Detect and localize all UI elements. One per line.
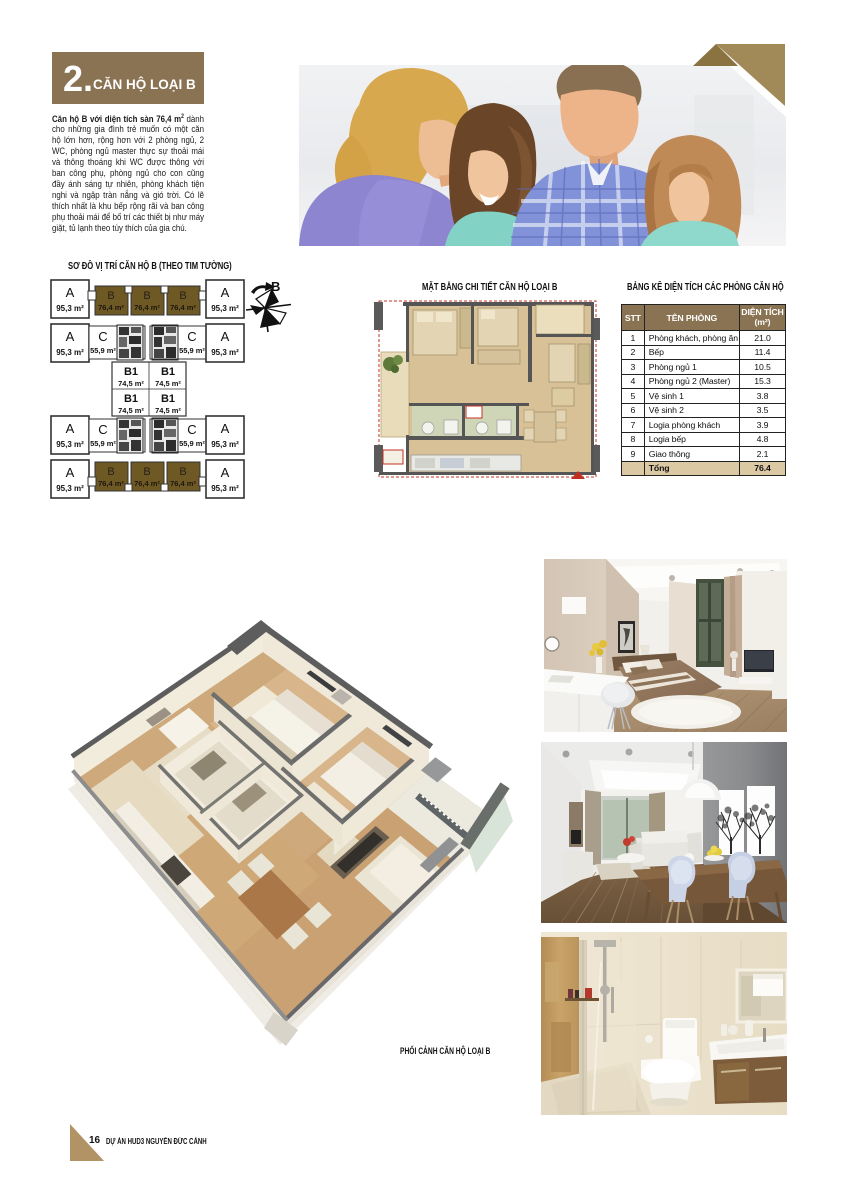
svg-text:55,9 m²: 55,9 m² <box>90 439 116 448</box>
svg-text:95,3 m²: 95,3 m² <box>56 440 84 449</box>
svg-text:76,4 m²: 76,4 m² <box>134 303 160 312</box>
svg-text:C: C <box>98 422 107 437</box>
svg-text:B1: B1 <box>161 393 175 405</box>
svg-text:A: A <box>221 285 230 300</box>
svg-text:A: A <box>221 465 230 480</box>
svg-text:B1: B1 <box>124 393 138 405</box>
svg-text:A: A <box>66 329 75 344</box>
svg-text:B1: B1 <box>161 366 175 378</box>
svg-text:95,3 m²: 95,3 m² <box>211 440 239 449</box>
svg-text:95,3 m²: 95,3 m² <box>56 304 84 313</box>
svg-text:C: C <box>187 422 196 437</box>
svg-text:B: B <box>179 290 186 302</box>
svg-text:B: B <box>107 290 114 302</box>
svg-text:95,3 m²: 95,3 m² <box>211 484 239 493</box>
svg-text:76,4 m²: 76,4 m² <box>170 479 196 488</box>
svg-text:76,4 m²: 76,4 m² <box>170 303 196 312</box>
svg-text:C: C <box>98 329 107 344</box>
svg-text:76,4 m²: 76,4 m² <box>134 479 160 488</box>
svg-text:A: A <box>66 421 75 436</box>
svg-text:76,4 m²: 76,4 m² <box>98 303 124 312</box>
svg-text:B1: B1 <box>124 366 138 378</box>
svg-text:B: B <box>143 290 150 302</box>
svg-text:95,3 m²: 95,3 m² <box>56 484 84 493</box>
svg-text:A: A <box>221 421 230 436</box>
svg-text:74,5 m²: 74,5 m² <box>118 379 144 388</box>
svg-text:74,5 m²: 74,5 m² <box>155 379 181 388</box>
svg-text:55,9 m²: 55,9 m² <box>179 346 205 355</box>
svg-text:55,9 m²: 55,9 m² <box>90 346 116 355</box>
svg-text:74,5 m²: 74,5 m² <box>155 406 181 415</box>
svg-text:74,5 m²: 74,5 m² <box>118 406 144 415</box>
svg-text:B: B <box>271 279 280 294</box>
svg-text:B: B <box>107 466 114 478</box>
svg-text:A: A <box>221 329 230 344</box>
svg-text:55,9 m²: 55,9 m² <box>179 439 205 448</box>
svg-text:B: B <box>143 466 150 478</box>
svg-text:95,3 m²: 95,3 m² <box>56 348 84 357</box>
svg-text:A: A <box>66 465 75 480</box>
svg-text:76,4 m²: 76,4 m² <box>98 479 124 488</box>
svg-text:95,3 m²: 95,3 m² <box>211 304 239 313</box>
svg-text:95,3 m²: 95,3 m² <box>211 348 239 357</box>
svg-text:B: B <box>179 466 186 478</box>
svg-text:C: C <box>187 329 196 344</box>
svg-text:A: A <box>66 285 75 300</box>
